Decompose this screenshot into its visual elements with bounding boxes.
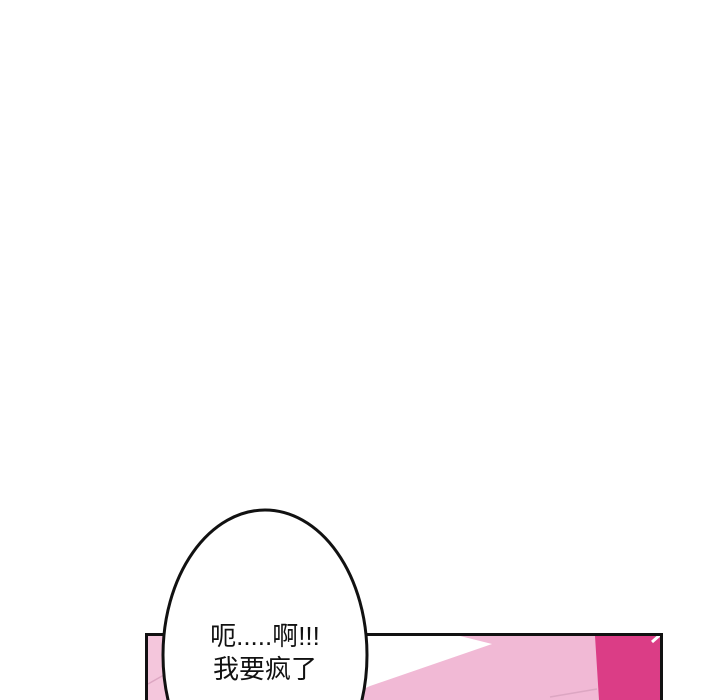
speech-line-1: 呃.....啊!!! xyxy=(160,620,370,653)
magenta-block xyxy=(595,636,660,700)
speech-line-2: 我要疯了 xyxy=(160,653,370,686)
speech-bubble-text: 呃.....啊!!! 我要疯了 xyxy=(160,620,370,686)
comic-page: 呃.....啊!!! 我要疯了 xyxy=(0,0,720,700)
comic-panel-artwork xyxy=(0,0,720,700)
